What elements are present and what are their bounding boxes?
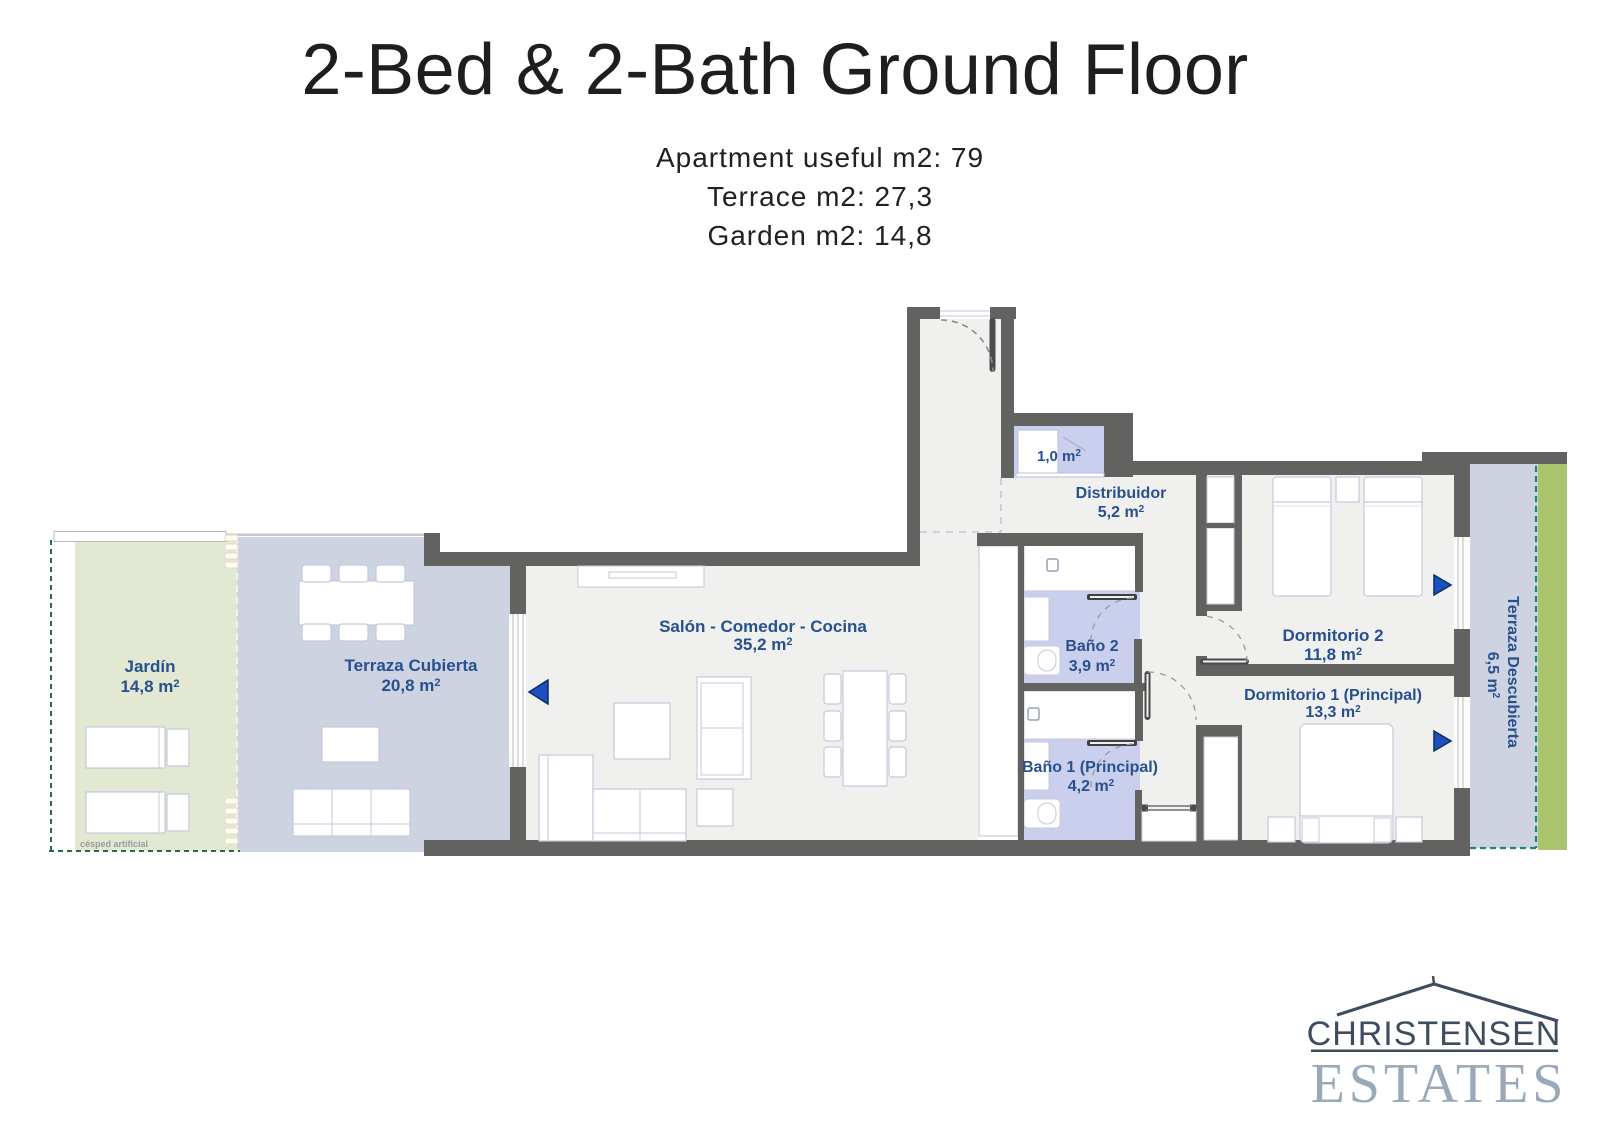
svg-text:Dormitorio 1 (Principal): Dormitorio 1 (Principal) (1244, 687, 1422, 704)
svg-text:Garden m2: 14,8: Garden m2: 14,8 (707, 220, 932, 251)
svg-text:Terraza Cubierta: Terraza Cubierta (345, 656, 478, 675)
svg-text:14,8 m2: 14,8 m2 (120, 677, 179, 696)
svg-text:1,0 m2: 1,0 m2 (1037, 448, 1081, 465)
svg-text:Terrace m2: 27,3: Terrace m2: 27,3 (707, 181, 933, 212)
svg-text:Distribuidor: Distribuidor (1076, 485, 1167, 502)
svg-text:2-Bed & 2-Bath Ground Floor: 2-Bed & 2-Bath Ground Floor (301, 30, 1248, 110)
svg-text:Baño 2: Baño 2 (1065, 638, 1118, 655)
svg-text:6,5 m2: 6,5 m2 (1484, 652, 1501, 699)
svg-text:3,9 m2: 3,9 m2 (1069, 658, 1116, 675)
svg-text:35,2 m2: 35,2 m2 (733, 635, 792, 654)
svg-text:Salón - Comedor - Cocina: Salón - Comedor - Cocina (659, 617, 867, 636)
svg-text:ESTATES: ESTATES (1311, 1053, 1568, 1115)
svg-text:4,2 m2: 4,2 m2 (1068, 778, 1115, 795)
svg-text:Terraza Descubierta: Terraza Descubierta (1504, 596, 1521, 748)
svg-text:Apartment useful m2: 79: Apartment useful m2: 79 (656, 142, 984, 173)
svg-text:césped artificial: césped artificial (80, 839, 148, 849)
svg-text:13,3 m2: 13,3 m2 (1305, 704, 1361, 721)
svg-text:20,8 m2: 20,8 m2 (381, 676, 440, 695)
svg-text:Dormitorio 2: Dormitorio 2 (1282, 626, 1383, 645)
svg-text:Baño 1 (Principal): Baño 1 (Principal) (1022, 759, 1158, 776)
svg-text:CHRISTENSEN: CHRISTENSEN (1307, 1015, 1562, 1053)
svg-text:11,8 m2: 11,8 m2 (1304, 645, 1362, 664)
svg-text:Jardín: Jardín (124, 657, 175, 676)
svg-text:5,2 m2: 5,2 m2 (1098, 504, 1145, 521)
